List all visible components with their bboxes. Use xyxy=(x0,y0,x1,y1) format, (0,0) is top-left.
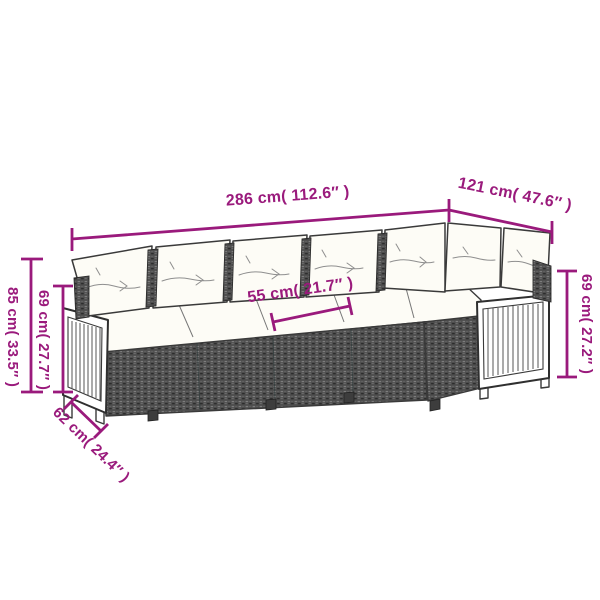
diagram-canvas: 286 cm( 112.6″ ) 121 cm( 47.6″ ) 85 cm( … xyxy=(0,0,600,600)
label-back-height-left: 69 cm( 27.7″ ) xyxy=(35,290,52,390)
arm-post-left xyxy=(74,276,89,319)
product-diagram: 286 cm( 112.6″ ) 121 cm( 47.6″ ) 85 cm( … xyxy=(0,0,600,600)
right-wood-panel xyxy=(477,295,549,399)
arm-post-corner xyxy=(533,260,551,302)
label-side-height-right: 69 cm( 27.2″ ) xyxy=(578,274,595,374)
back-pillow xyxy=(383,223,445,292)
divider-post xyxy=(146,249,158,307)
label-side-depth: 121 cm( 47.6″ ) xyxy=(457,175,574,215)
label-total-height: 85 cm( 33.5″ ) xyxy=(4,287,21,387)
sofa-illustration xyxy=(63,223,551,424)
left-wood-panel xyxy=(63,308,108,424)
divider-post xyxy=(223,243,234,301)
rattan-base-right-unit xyxy=(424,316,481,401)
divider-post xyxy=(376,233,387,291)
label-seat-depth: 62 cm( 24.4″ ) xyxy=(49,404,133,486)
label-total-width: 286 cm( 112.6″ ) xyxy=(225,183,350,209)
back-pillow xyxy=(153,240,230,308)
dim-line-side-height-right xyxy=(557,271,577,377)
